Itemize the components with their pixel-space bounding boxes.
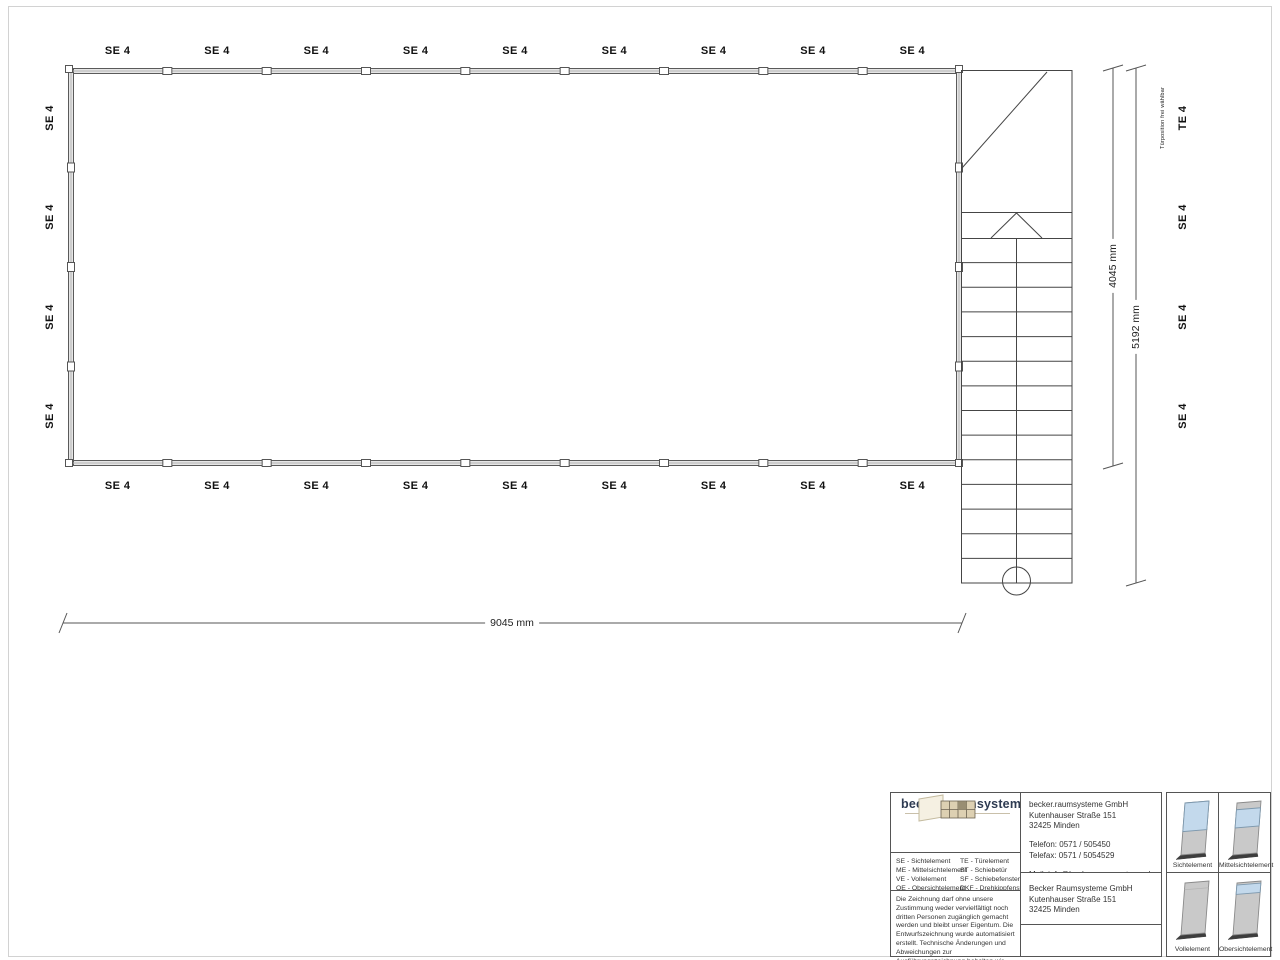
bottom-wall-label: SE 4 xyxy=(105,480,130,492)
top-wall-label: SE 4 xyxy=(701,45,726,57)
legend-entry: SE - Sichtelement xyxy=(896,857,960,866)
dim-text-width: 9045 mm xyxy=(485,617,539,629)
top-wall-label: SE 4 xyxy=(403,45,428,57)
legend-entry: TE - Türelement xyxy=(960,857,1028,866)
address-lines: Becker Raumsysteme GmbHKutenhauser Straß… xyxy=(1021,873,1161,916)
bottom-wall-label: SE 4 xyxy=(602,480,627,492)
contact-line: 32425 Minden xyxy=(1029,821,1157,832)
contact-line: Kutenhauser Straße 151 xyxy=(1029,811,1157,822)
bottom-wall-label: SE 4 xyxy=(403,480,428,492)
top-wall-label: SE 4 xyxy=(602,45,627,57)
right-wall-label: TE 4 xyxy=(1177,105,1189,130)
top-wall-label: SE 4 xyxy=(204,45,229,57)
legend-column-left: SE - SichtelementME - Mittelsichtelement… xyxy=(896,857,960,893)
bottom-wall-label: SE 4 xyxy=(900,480,925,492)
left-wall-label: SE 4 xyxy=(44,404,56,429)
empty-cell xyxy=(1020,924,1162,957)
address-line: Kutenhauser Straße 151 xyxy=(1029,895,1157,906)
legend-entry: SF - Schiebefenster xyxy=(960,875,1028,884)
disclaimer-cell: Die Zeichnung darf ohne unsere Zustimmun… xyxy=(890,890,1021,957)
element-card-sichtelement: Sichtelement xyxy=(1166,792,1219,873)
element-card-label: Sichtelement xyxy=(1167,862,1218,869)
address-line: Becker Raumsysteme GmbH xyxy=(1029,884,1157,895)
legend-entry: VE - Vollelement xyxy=(896,875,960,884)
door-swing-line xyxy=(962,72,1047,168)
logo-cell: becker.raumsysteme® xyxy=(890,792,1021,853)
disclaimer-text: Die Zeichnung darf ohne unsere Zustimmun… xyxy=(891,891,1020,960)
legend-column-right: TE - TürelementST - SchiebetürSF - Schie… xyxy=(960,857,1028,893)
dim-text-room-height: 4045 mm xyxy=(1107,239,1119,293)
door-position-note: Türposition frei wählbar xyxy=(1160,87,1166,149)
right-wall-label: SE 4 xyxy=(1177,304,1189,329)
stair-direction-arrow xyxy=(991,213,1042,238)
right-wall-label: SE 4 xyxy=(1177,404,1189,429)
contact-line: Telefon: 0571 / 505450 xyxy=(1029,840,1157,851)
title-block: becker.raumsysteme® SE - SichtelementME … xyxy=(890,792,1271,957)
element-card-vollelement: Vollelement xyxy=(1166,872,1219,957)
bottom-wall-label: SE 4 xyxy=(204,480,229,492)
bottom-wall-label: SE 4 xyxy=(800,480,825,492)
contact-cell: becker.raumsysteme GmbHKutenhauser Straß… xyxy=(1020,792,1162,873)
contact-line xyxy=(1029,832,1157,840)
staircase xyxy=(962,71,1073,596)
element-card-obersichtelement: Obersichtelement xyxy=(1218,872,1271,957)
dimension-lines xyxy=(59,65,1146,633)
room-walls xyxy=(68,68,962,466)
left-wall-label: SE 4 xyxy=(44,304,56,329)
legend-entry: ST - Schiebetür xyxy=(960,866,1028,875)
address-line: 32425 Minden xyxy=(1029,905,1157,916)
element-card-label: Vollelement xyxy=(1167,946,1218,953)
left-wall-label: SE 4 xyxy=(44,105,56,130)
contact-line xyxy=(1029,862,1157,870)
cad-drawing-sheet: SE 4SE 4SE 4SE 4SE 4SE 4SE 4SE 4SE 4SE 4… xyxy=(0,0,1280,960)
element-card-mittelsichtelement: Mittelsichtelement xyxy=(1218,792,1271,873)
top-wall-label: SE 4 xyxy=(304,45,329,57)
bottom-wall-label: SE 4 xyxy=(701,480,726,492)
dim-text-total-height: 5192 mm xyxy=(1130,300,1142,354)
element-card-label: Mittelsichtelement xyxy=(1219,862,1270,869)
bottom-wall-label: SE 4 xyxy=(502,480,527,492)
wall-connector-nodes xyxy=(66,66,963,467)
legend-cell: SE - SichtelementME - Mittelsichtelement… xyxy=(890,852,1021,891)
top-wall-label: SE 4 xyxy=(105,45,130,57)
contact-line: becker.raumsysteme GmbH xyxy=(1029,800,1157,811)
bottom-wall-label: SE 4 xyxy=(304,480,329,492)
logo-graphic xyxy=(891,793,1002,823)
top-wall-label: SE 4 xyxy=(502,45,527,57)
element-card-label: Obersichtelement xyxy=(1219,946,1270,953)
legend-entry: ME - Mittelsichtelement xyxy=(896,866,960,875)
top-wall-label: SE 4 xyxy=(800,45,825,57)
left-wall-label: SE 4 xyxy=(44,205,56,230)
contact-line: Telefax: 0571 / 5054529 xyxy=(1029,851,1157,862)
address-cell: Becker Raumsysteme GmbHKutenhauser Straß… xyxy=(1020,872,1162,925)
top-wall-label: SE 4 xyxy=(900,45,925,57)
right-wall-label: SE 4 xyxy=(1177,205,1189,230)
